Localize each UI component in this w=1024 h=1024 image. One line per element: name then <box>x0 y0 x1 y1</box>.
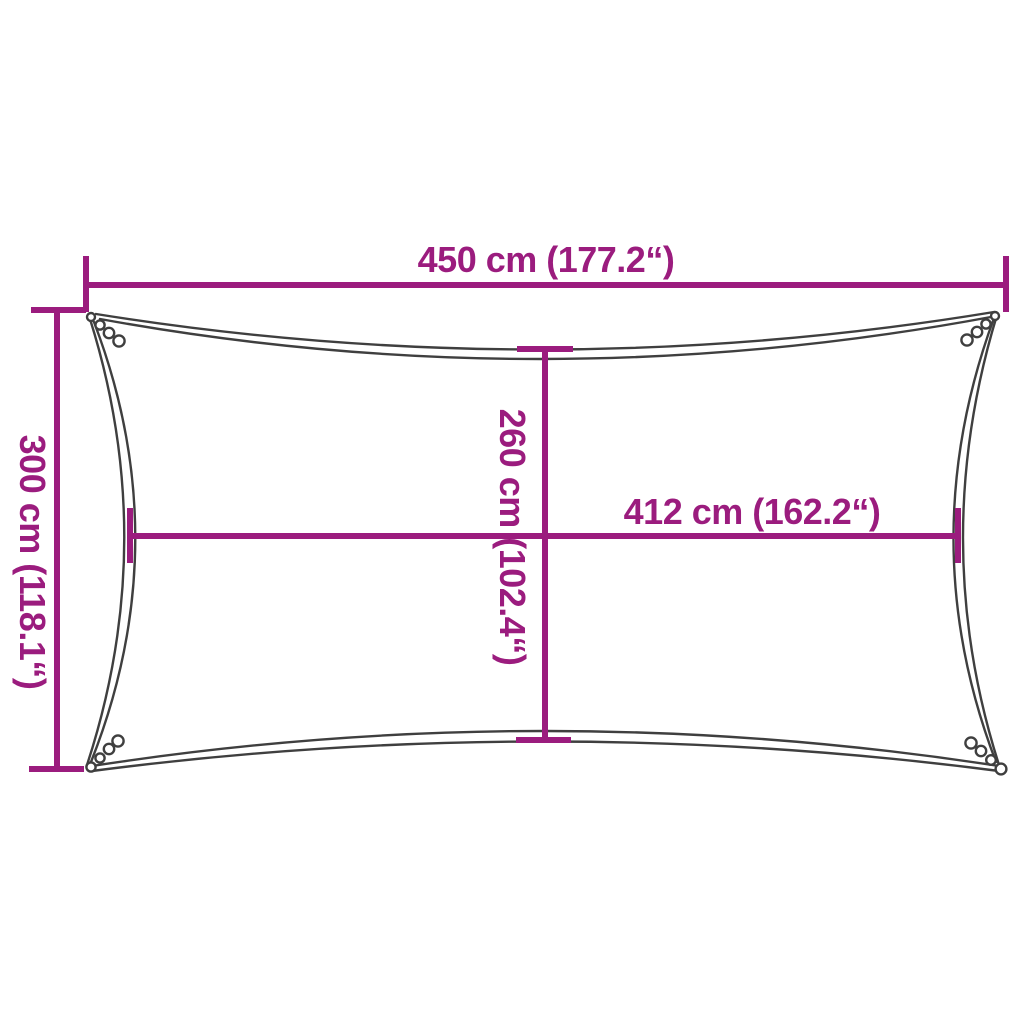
product-dimension-diagram: 450 cm (177.2“) 300 cm (118.1“) 260 cm (… <box>0 0 1024 1024</box>
sail-edge-left-outer <box>87 319 124 765</box>
dim-label-center-height: 260 cm (102.4“) <box>492 409 533 666</box>
sail-edge-right-outer <box>963 315 999 765</box>
dimension-labels: 450 cm (177.2“) 300 cm (118.1“) 260 cm (… <box>12 239 880 689</box>
diagram-svg: 450 cm (177.2“) 300 cm (118.1“) 260 cm (… <box>0 0 1024 1024</box>
sail-edge-bottom-outer <box>92 742 999 772</box>
dim-label-top-width: 450 cm (177.2“) <box>418 239 675 280</box>
sail-corner-loops-bottom-left <box>86 735 123 771</box>
sail-edge-top-outer <box>96 312 994 350</box>
dim-label-center-width: 412 cm (162.2“) <box>624 491 881 532</box>
dim-label-side-height: 300 cm (118.1“) <box>12 435 53 690</box>
